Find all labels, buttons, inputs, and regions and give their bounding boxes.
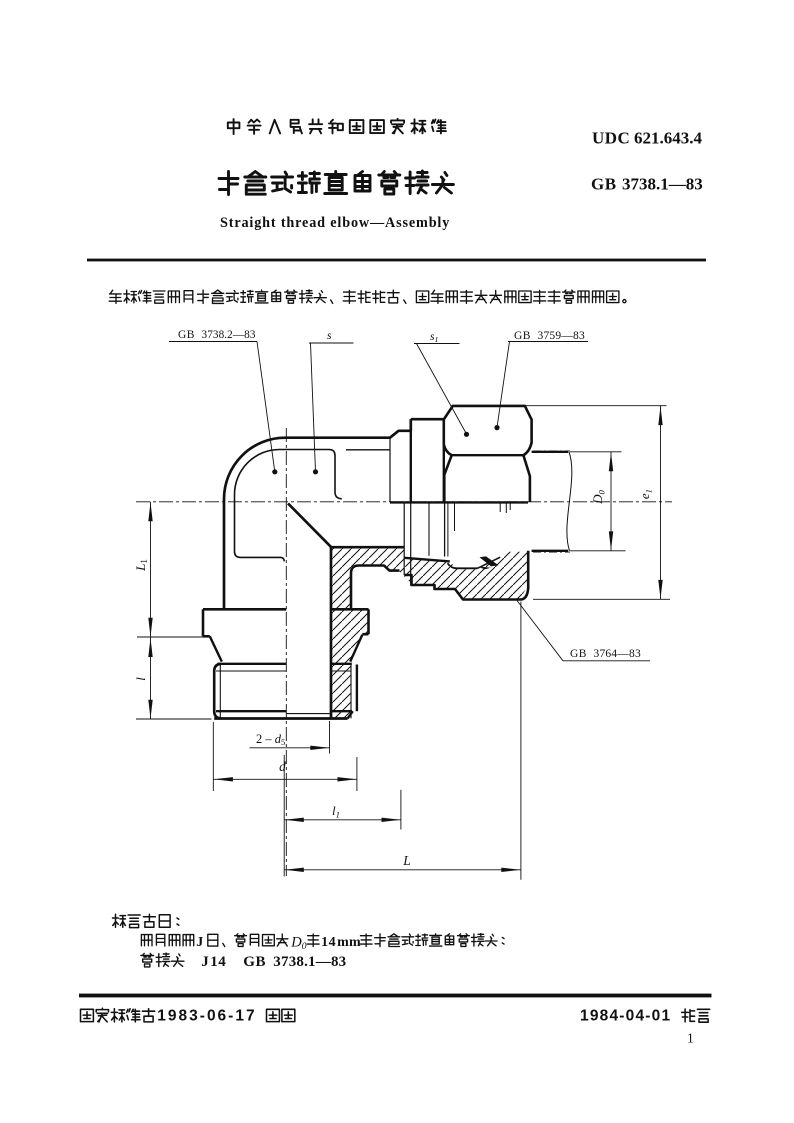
svg-text:3738.1—83: 3738.1—83 — [273, 954, 346, 970]
svg-text:1984-04-01: 1984-04-01 — [580, 1008, 671, 1025]
svg-text:3759—83: 3759—83 — [538, 330, 585, 342]
svg-text:Straight thread elbow—Assembly: Straight thread elbow—Assembly — [220, 215, 450, 231]
svg-text:GB: GB — [514, 330, 531, 342]
svg-text:L: L — [402, 853, 411, 868]
svg-text:14: 14 — [321, 935, 336, 950]
svg-text:D0: D0 — [290, 935, 306, 953]
svg-text:621.643.4: 621.643.4 — [634, 129, 703, 148]
svg-text:s1: s1 — [430, 331, 438, 344]
svg-text:1983-06-17: 1983-06-17 — [157, 1008, 256, 1025]
svg-text:GB: GB — [178, 329, 195, 341]
svg-text:J: J — [201, 954, 209, 970]
svg-text:GB: GB — [570, 648, 587, 660]
svg-text:2 – d5: 2 – d5 — [256, 732, 285, 747]
svg-text:l: l — [133, 677, 148, 681]
svg-text:mm: mm — [337, 935, 361, 950]
svg-text:d: d — [279, 759, 286, 774]
svg-text:GB: GB — [243, 954, 266, 970]
svg-text:3738.2—83: 3738.2—83 — [202, 329, 256, 341]
svg-text:14: 14 — [210, 954, 226, 970]
svg-text:l1: l1 — [332, 803, 340, 819]
svg-text:1: 1 — [687, 1031, 694, 1046]
svg-text:e1: e1 — [637, 489, 653, 499]
svg-text:L1: L1 — [133, 559, 149, 572]
svg-text:3764—83: 3764—83 — [594, 648, 641, 660]
svg-text:D0: D0 — [590, 490, 606, 505]
svg-text:3738.1—83: 3738.1—83 — [622, 175, 703, 194]
svg-text:s: s — [327, 330, 332, 342]
svg-text:J: J — [196, 935, 203, 950]
svg-text:UDC: UDC — [592, 129, 630, 148]
svg-text:GB: GB — [591, 175, 617, 194]
